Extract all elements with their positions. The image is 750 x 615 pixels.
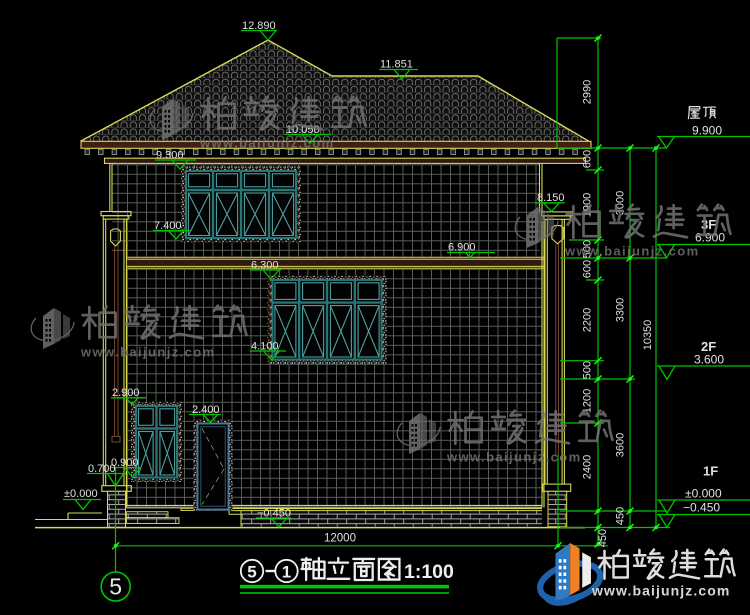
svg-text:5: 5 — [247, 563, 256, 582]
svg-text:www.baijunjz.com: www.baijunjz.com — [591, 583, 730, 599]
svg-text:±0.000: ±0.000 — [685, 487, 722, 501]
svg-text:450: 450 — [597, 529, 609, 547]
svg-text:www.baijunjz.com: www.baijunjz.com — [80, 345, 216, 360]
svg-text:2990: 2990 — [582, 80, 594, 104]
svg-text:1:100: 1:100 — [404, 561, 454, 583]
svg-text:6.900: 6.900 — [695, 231, 725, 245]
svg-text:1F: 1F — [703, 464, 718, 479]
svg-text:1: 1 — [282, 563, 291, 582]
svg-text:600: 600 — [582, 260, 594, 278]
svg-text:2400: 2400 — [582, 455, 594, 479]
svg-text:6.900: 6.900 — [448, 242, 476, 254]
svg-text:450: 450 — [615, 507, 627, 525]
svg-text:−0.450: −0.450 — [683, 501, 720, 515]
svg-text:www.baijunjz.com: www.baijunjz.com — [199, 136, 335, 151]
svg-text:3.600: 3.600 — [694, 353, 724, 367]
svg-text:12000: 12000 — [324, 533, 356, 545]
svg-text:10350: 10350 — [642, 320, 654, 351]
svg-text:2200: 2200 — [582, 308, 594, 332]
svg-text:600: 600 — [582, 150, 594, 168]
svg-text:3300: 3300 — [615, 298, 627, 322]
svg-text:5: 5 — [109, 574, 122, 600]
svg-text:11.851: 11.851 — [380, 59, 413, 71]
svg-text:www.baijunjz.com: www.baijunjz.com — [446, 450, 582, 465]
svg-text:±0.000: ±0.000 — [64, 488, 98, 500]
svg-text:www.baijunjz.com: www.baijunjz.com — [564, 244, 700, 259]
svg-text:500: 500 — [582, 361, 594, 379]
svg-text:3600: 3600 — [615, 433, 627, 457]
svg-text:9.900: 9.900 — [692, 124, 722, 138]
